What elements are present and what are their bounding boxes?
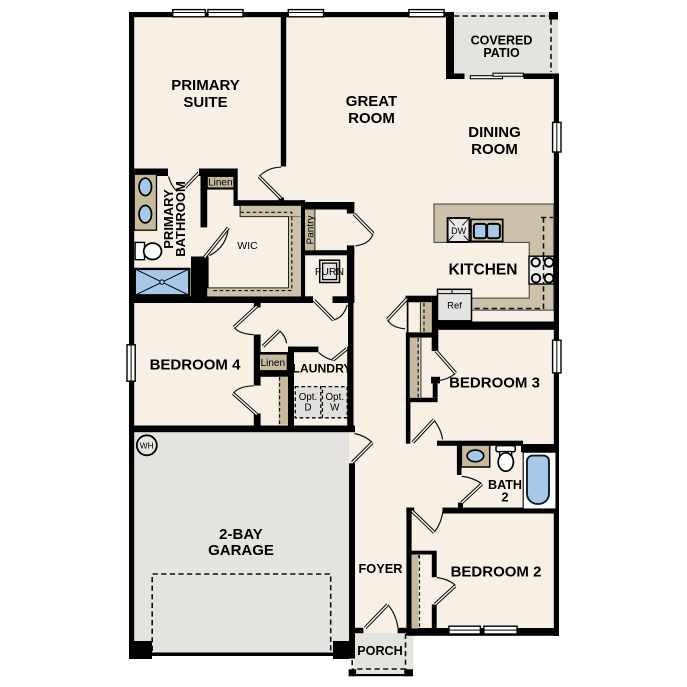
svg-text:BEDROOM 2: BEDROOM 2: [451, 564, 542, 581]
svg-text:PATIO: PATIO: [483, 46, 520, 60]
svg-text:GARAGE: GARAGE: [208, 542, 274, 559]
svg-text:FURN: FURN: [315, 266, 344, 278]
svg-text:Ref: Ref: [447, 300, 462, 311]
svg-text:GREAT: GREAT: [346, 93, 397, 110]
svg-text:WH: WH: [140, 441, 154, 451]
svg-text:Linen: Linen: [261, 358, 285, 369]
svg-text:Opt.: Opt.: [326, 392, 345, 403]
svg-text:FOYER: FOYER: [358, 561, 402, 576]
svg-text:DINING: DINING: [468, 124, 521, 141]
svg-text:BEDROOM 3: BEDROOM 3: [449, 375, 540, 392]
svg-text:ROOM: ROOM: [471, 141, 518, 158]
svg-text:2: 2: [501, 491, 508, 505]
svg-text:SUITE: SUITE: [183, 94, 227, 111]
svg-text:Opt.: Opt.: [299, 392, 318, 403]
svg-text:BEDROOM 4: BEDROOM 4: [150, 357, 242, 374]
svg-text:WIC: WIC: [237, 240, 258, 252]
svg-text:LAUNDRY: LAUNDRY: [292, 361, 351, 375]
svg-text:ROOM: ROOM: [348, 110, 395, 127]
svg-text:D: D: [304, 403, 311, 414]
svg-text:KITCHEN: KITCHEN: [449, 262, 518, 279]
svg-text:DW: DW: [451, 226, 466, 236]
svg-text:Pantry: Pantry: [306, 216, 317, 245]
svg-text:BATHROOM: BATHROOM: [173, 181, 188, 257]
svg-text:Linen: Linen: [208, 178, 232, 189]
svg-text:W: W: [330, 403, 340, 414]
svg-text:2-BAY: 2-BAY: [219, 526, 263, 543]
svg-text:PRIMARY: PRIMARY: [171, 77, 240, 94]
svg-text:PORCH: PORCH: [357, 644, 402, 658]
